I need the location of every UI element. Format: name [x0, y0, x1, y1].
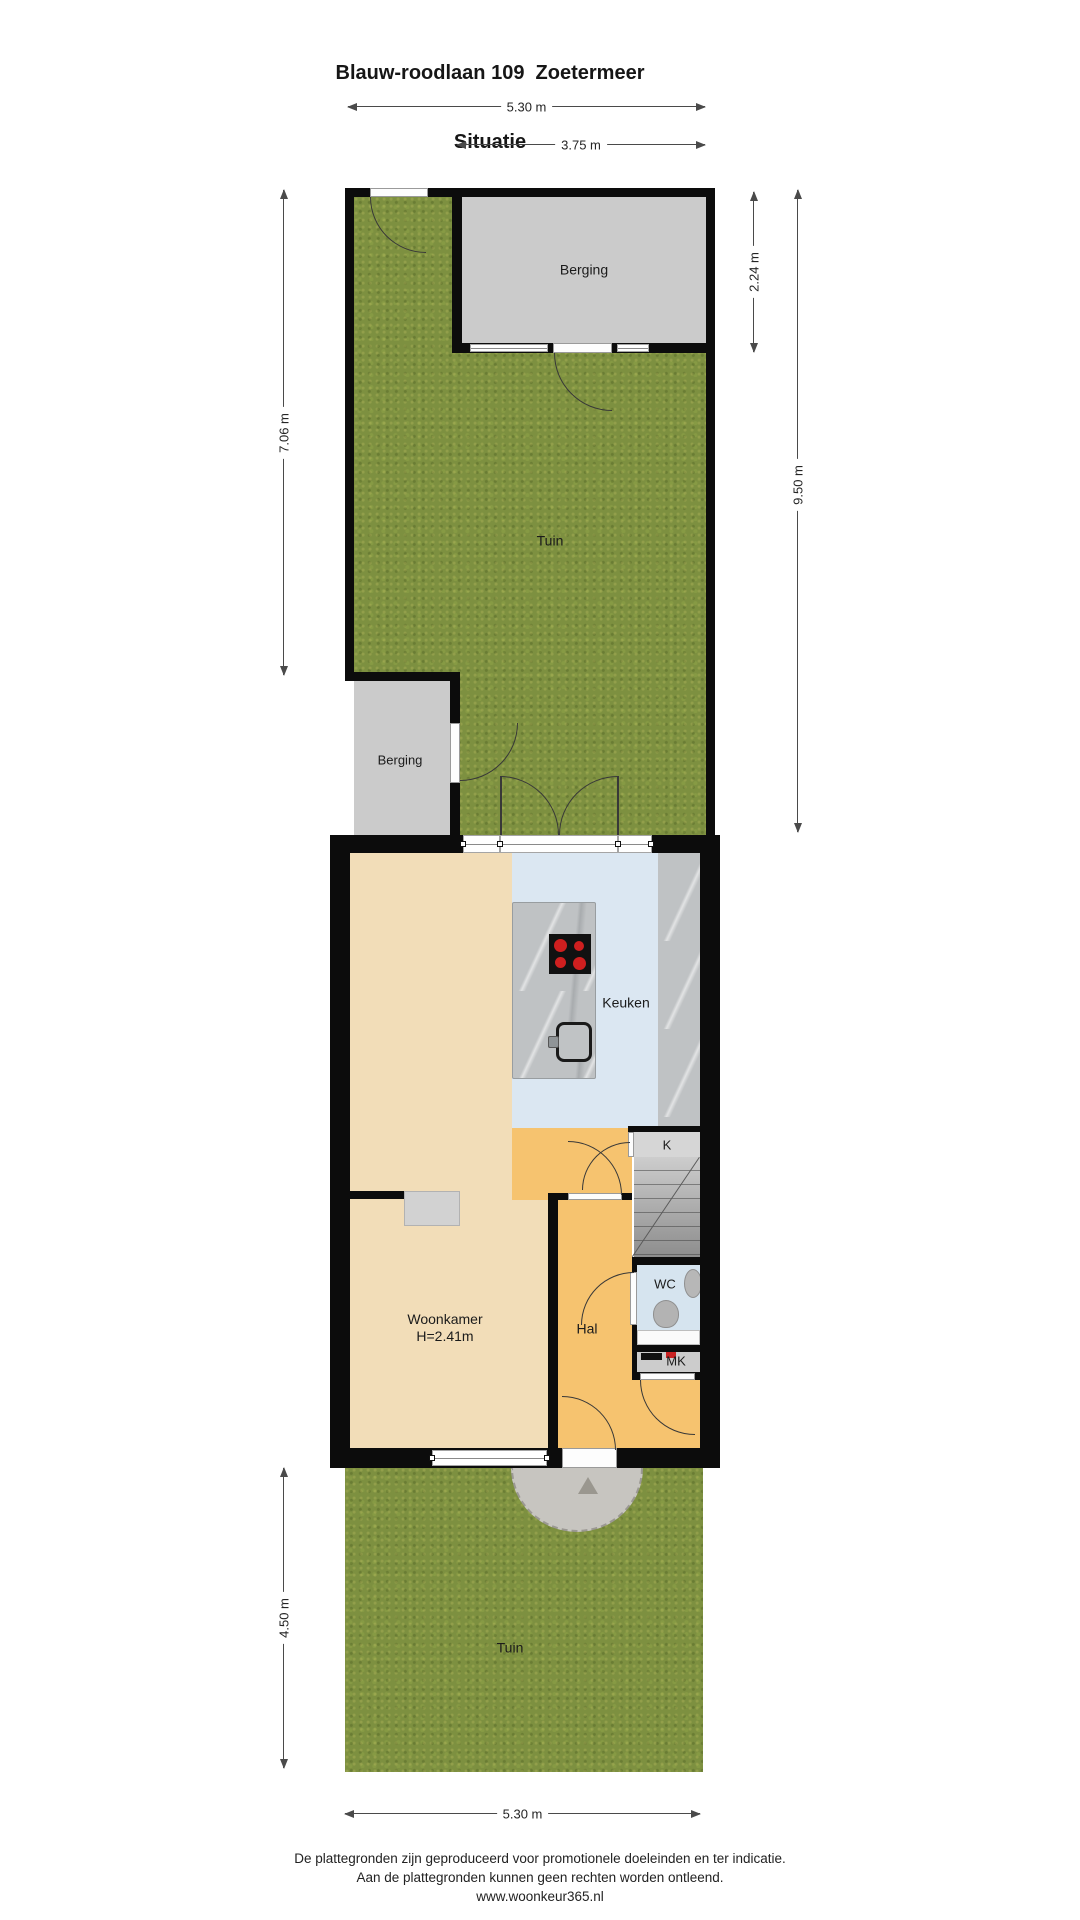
mk-label: MK [666, 1353, 686, 1370]
window-jamb [648, 841, 654, 847]
dim-top-width: 5.30 m [348, 106, 705, 107]
wall-segment [330, 835, 463, 853]
wall-segment [345, 672, 460, 681]
footer-line2: Aan de plattegronden kunnen geen rechten… [0, 1868, 1080, 1887]
closet-label: K [663, 1137, 672, 1154]
living-room-window [432, 1450, 547, 1466]
dim-berging-width: 3.75 m [457, 144, 705, 145]
floor-plan: Blauw-roodlaan 109 Zoetermeer Situatie 5… [0, 0, 1080, 1920]
title-line1: Blauw-roodlaan 109 Zoetermeer [190, 62, 790, 85]
berging-side-door [450, 723, 460, 783]
wc-label: WC [654, 1276, 676, 1293]
dim-top-width-label: 5.30 m [501, 100, 553, 115]
window [463, 835, 500, 853]
wall-segment [706, 188, 715, 853]
mk-door [640, 1373, 695, 1380]
berging-door [553, 343, 612, 353]
dim-berging-height-label: 2.24 m [747, 246, 762, 298]
wall-segment [452, 197, 462, 353]
kitchen-label: Keuken [602, 995, 649, 1012]
window [618, 835, 652, 853]
dim-front-garden-height-label: 4.50 m [277, 1592, 292, 1644]
window-jamb [497, 841, 503, 847]
french-doors [500, 835, 618, 853]
porch-triangle-icon [578, 1477, 598, 1494]
burner-icon [555, 957, 566, 968]
meter-box-icon [641, 1353, 662, 1360]
sink-icon [556, 1022, 592, 1062]
wall-segment [632, 1257, 700, 1265]
window-jamb [544, 1455, 550, 1461]
front-door [562, 1448, 617, 1468]
dim-berging-height: 2.24 m [753, 192, 754, 352]
window-jamb [615, 841, 621, 847]
back-garden-label: Tuin [537, 533, 564, 550]
window [617, 344, 649, 352]
living-room-label: Woonkamer H=2.41m [407, 1311, 482, 1345]
window [470, 344, 548, 352]
wall-segment [700, 835, 720, 1468]
door-leaf [617, 776, 619, 835]
wall-segment [548, 1193, 558, 1448]
footer-line1: De plattegronden zijn geproduceerd voor … [0, 1849, 1080, 1868]
window-jamb [460, 841, 466, 847]
burner-icon [573, 957, 586, 970]
wall-segment [330, 835, 350, 1468]
wall-segment [632, 1345, 700, 1352]
kitchen-counter [658, 853, 700, 1128]
front-garden [345, 1468, 703, 1772]
garden-gate [370, 188, 428, 197]
hall-label: Hal [576, 1321, 597, 1338]
wall-segment [652, 835, 720, 853]
burner-icon [574, 941, 584, 951]
toilet-icon [653, 1300, 679, 1328]
dim-bottom-width: 5.30 m [345, 1813, 700, 1814]
dim-bottom-width-label: 5.30 m [497, 1807, 549, 1822]
front-garden-label: Tuin [497, 1640, 524, 1657]
berging-side-label: Berging [378, 752, 423, 769]
wall-segment [350, 1191, 404, 1199]
living-room-name: Woonkamer [407, 1311, 482, 1328]
living-room-height: H=2.41m [407, 1328, 482, 1345]
dim-berging-width-label: 3.75 m [555, 138, 607, 153]
chimney-block [404, 1191, 460, 1226]
wall-segment [345, 188, 354, 681]
dim-front-garden-height: 4.50 m [283, 1468, 284, 1768]
berging-top-label: Berging [560, 262, 608, 279]
dim-left-garden-height-label: 7.06 m [277, 407, 292, 459]
dim-left-garden-height: 7.06 m [283, 190, 284, 675]
window-jamb [429, 1455, 435, 1461]
wc-shelf [637, 1330, 700, 1345]
faucet-icon [548, 1036, 559, 1048]
stove-icon [549, 934, 591, 974]
footer-line3: www.woonkeur365.nl [0, 1887, 1080, 1906]
burner-icon [554, 939, 567, 952]
door-leaf [500, 776, 502, 835]
dim-right-garden-height: 9.50 m [797, 190, 798, 832]
staircase [634, 1157, 700, 1257]
footer-disclaimer: De plattegronden zijn geproduceerd voor … [0, 1849, 1080, 1906]
dim-right-garden-height-label: 9.50 m [791, 459, 806, 511]
